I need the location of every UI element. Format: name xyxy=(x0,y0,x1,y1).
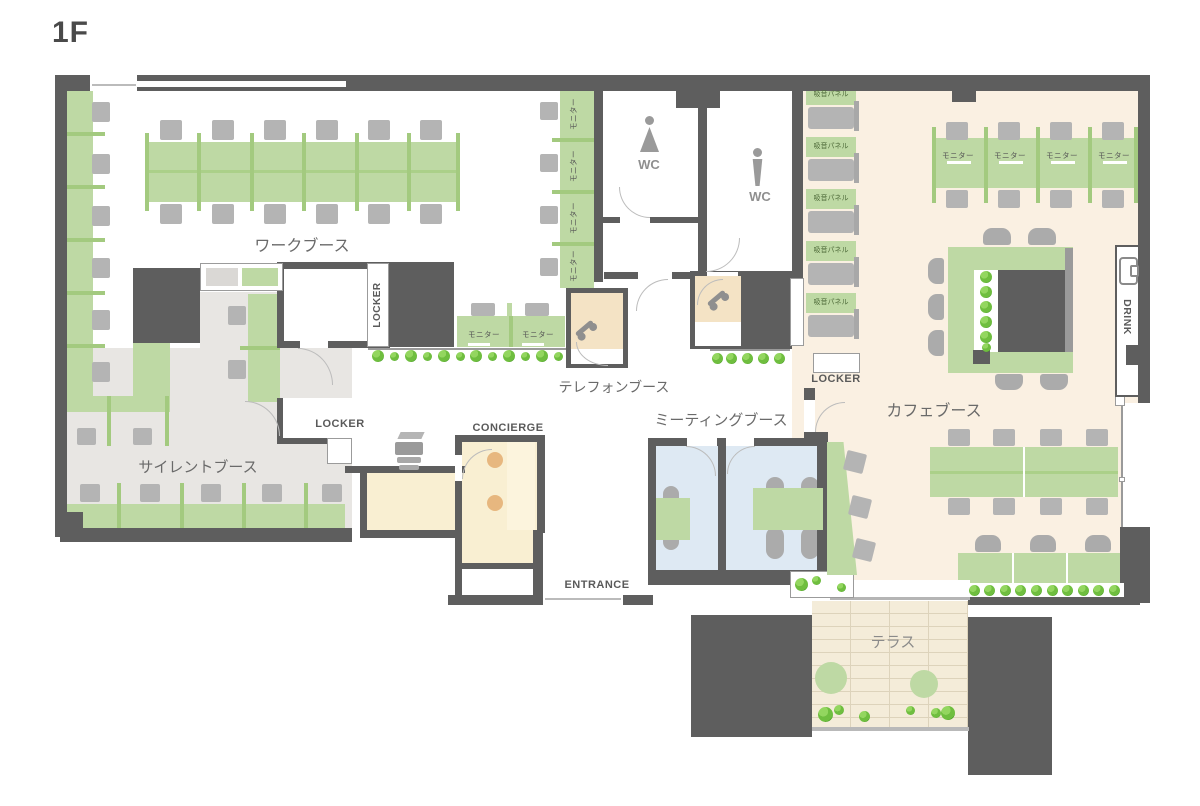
overlay xyxy=(690,349,710,365)
overlay xyxy=(90,75,137,91)
locker-label-cafe: LOCKER xyxy=(810,373,862,385)
overlay xyxy=(507,442,535,530)
storage-inner xyxy=(206,268,238,286)
plant-icon xyxy=(837,583,846,592)
room-label-work-booth: ワークブース xyxy=(230,232,374,256)
overlay xyxy=(545,598,621,600)
overlay xyxy=(973,350,990,364)
overlay xyxy=(999,161,1023,164)
plant-icon xyxy=(859,711,870,722)
plant-icon xyxy=(984,585,995,596)
plant-icon xyxy=(405,350,417,362)
monitor-label: モニター xyxy=(568,244,580,288)
plant-icon xyxy=(774,353,785,364)
door-arc xyxy=(619,187,650,218)
plant-icon xyxy=(1015,585,1026,596)
door-arc xyxy=(245,401,280,436)
male-wc-icon xyxy=(748,148,768,192)
overlay xyxy=(300,341,328,348)
chair xyxy=(843,450,867,474)
monitor-label: モニター xyxy=(993,150,1027,161)
counter-block xyxy=(1126,345,1142,365)
female-wc-icon xyxy=(638,116,662,162)
plant-icon xyxy=(1109,585,1120,596)
monitor-label: モニター xyxy=(1097,150,1131,161)
monitor-label: モニター xyxy=(520,329,556,340)
overlay xyxy=(804,400,815,432)
entrance-label: ENTRANCE xyxy=(558,579,636,591)
plant-icon xyxy=(712,353,723,364)
plant-icon xyxy=(521,352,530,361)
overlay xyxy=(522,343,544,346)
overlay xyxy=(695,322,741,346)
plant-icon xyxy=(726,353,737,364)
overlay xyxy=(1103,161,1127,164)
room-label-cafe-booth: カフェブース xyxy=(884,397,984,421)
copier-icon xyxy=(391,430,429,472)
plant-icon xyxy=(758,353,769,364)
overlay xyxy=(656,498,690,540)
plant-icon xyxy=(1078,585,1089,596)
sound-panel-label: 吸音パネル xyxy=(806,189,856,209)
plant-icon xyxy=(980,286,992,298)
chair xyxy=(852,538,876,562)
plant-icon xyxy=(554,352,563,361)
storage-box xyxy=(1119,477,1125,482)
wc-label-male: WC xyxy=(744,189,776,204)
storage-box xyxy=(327,438,352,464)
overlay xyxy=(812,727,969,731)
plant-icon xyxy=(982,343,991,352)
door-arc xyxy=(636,279,668,311)
coffee-machine-handle xyxy=(1130,265,1139,277)
plant-icon xyxy=(980,331,992,343)
plant-icon xyxy=(1047,585,1058,596)
floor-plan-overlay xyxy=(0,0,1200,806)
storage-box xyxy=(813,353,860,373)
overlay xyxy=(137,81,346,87)
plant-icon xyxy=(980,271,992,283)
overlay xyxy=(543,595,623,605)
overlay xyxy=(947,161,971,164)
door-arc xyxy=(298,348,333,385)
plant-icon xyxy=(931,708,941,718)
plant-icon xyxy=(818,707,833,722)
sound-panel-label: 吸音パネル xyxy=(806,241,856,261)
drink-label: DRINK xyxy=(1121,289,1133,345)
concierge-stool xyxy=(487,452,503,468)
storage-box xyxy=(790,278,804,346)
plant-icon xyxy=(372,350,384,362)
overlay xyxy=(1051,161,1075,164)
concierge-stool xyxy=(487,495,503,511)
monitor-label: モニター xyxy=(568,144,580,188)
concierge-label: CONCIERGE xyxy=(464,422,552,434)
locker-label-center: LOCKER xyxy=(372,275,384,335)
storage-inner xyxy=(242,268,278,286)
room-label-meeting-booth: ミーティングブース xyxy=(646,409,796,430)
overlay xyxy=(1121,405,1123,527)
door-arc xyxy=(686,446,716,476)
locker-label-silent: LOCKER xyxy=(314,418,366,430)
overlay xyxy=(468,343,490,346)
plant-icon xyxy=(488,352,497,361)
plant-icon xyxy=(423,352,432,361)
room-label-silent-booth: サイレントブース xyxy=(118,456,278,477)
overlay xyxy=(1123,403,1150,527)
overlay xyxy=(753,488,823,530)
sound-panel-label: 吸音パネル xyxy=(806,293,856,313)
storage-box xyxy=(1115,396,1125,406)
sound-panel-label: 吸音パネル xyxy=(806,85,856,105)
door-arc xyxy=(727,446,755,474)
plant-icon xyxy=(969,585,980,596)
monitor-label: モニター xyxy=(466,329,502,340)
cafe-diagonal-bench xyxy=(827,442,873,575)
monitor-label: モニター xyxy=(941,150,975,161)
overlay xyxy=(455,455,462,481)
door-arc xyxy=(815,402,845,432)
plant-icon xyxy=(980,301,992,313)
wc-label-female: WC xyxy=(633,157,665,172)
room-label-terrace: テラス xyxy=(866,631,920,652)
plant-icon xyxy=(795,578,808,591)
monitor-label: モニター xyxy=(568,92,580,136)
sound-panel-label: 吸音パネル xyxy=(806,137,856,157)
overlay xyxy=(726,438,754,446)
plant-icon xyxy=(438,350,450,362)
floor-plan: 1F WC WC xyxy=(0,0,1200,806)
plant-icon xyxy=(1031,585,1042,596)
overlay xyxy=(620,217,650,223)
plant-icon xyxy=(834,705,844,715)
overlay xyxy=(687,438,717,446)
door-arc xyxy=(706,238,740,272)
plant-icon xyxy=(941,706,955,720)
monitor-label: モニター xyxy=(1045,150,1079,161)
plant-icon xyxy=(742,353,753,364)
plant-icon xyxy=(390,352,399,361)
plant-icon xyxy=(980,316,992,328)
plant-icon xyxy=(812,576,821,585)
room-label-telephone-booth: テレフォンブース xyxy=(552,377,676,397)
plant-icon xyxy=(536,350,548,362)
overlay xyxy=(92,84,136,86)
plant-icon xyxy=(906,706,915,715)
overlay xyxy=(1065,248,1073,352)
overlay xyxy=(638,272,672,279)
chair xyxy=(848,495,872,519)
plant-icon xyxy=(456,352,465,361)
plant-icon xyxy=(1093,585,1104,596)
monitor-label: モニター xyxy=(568,196,580,240)
plant-icon xyxy=(1000,585,1011,596)
plant-icon xyxy=(1062,585,1073,596)
